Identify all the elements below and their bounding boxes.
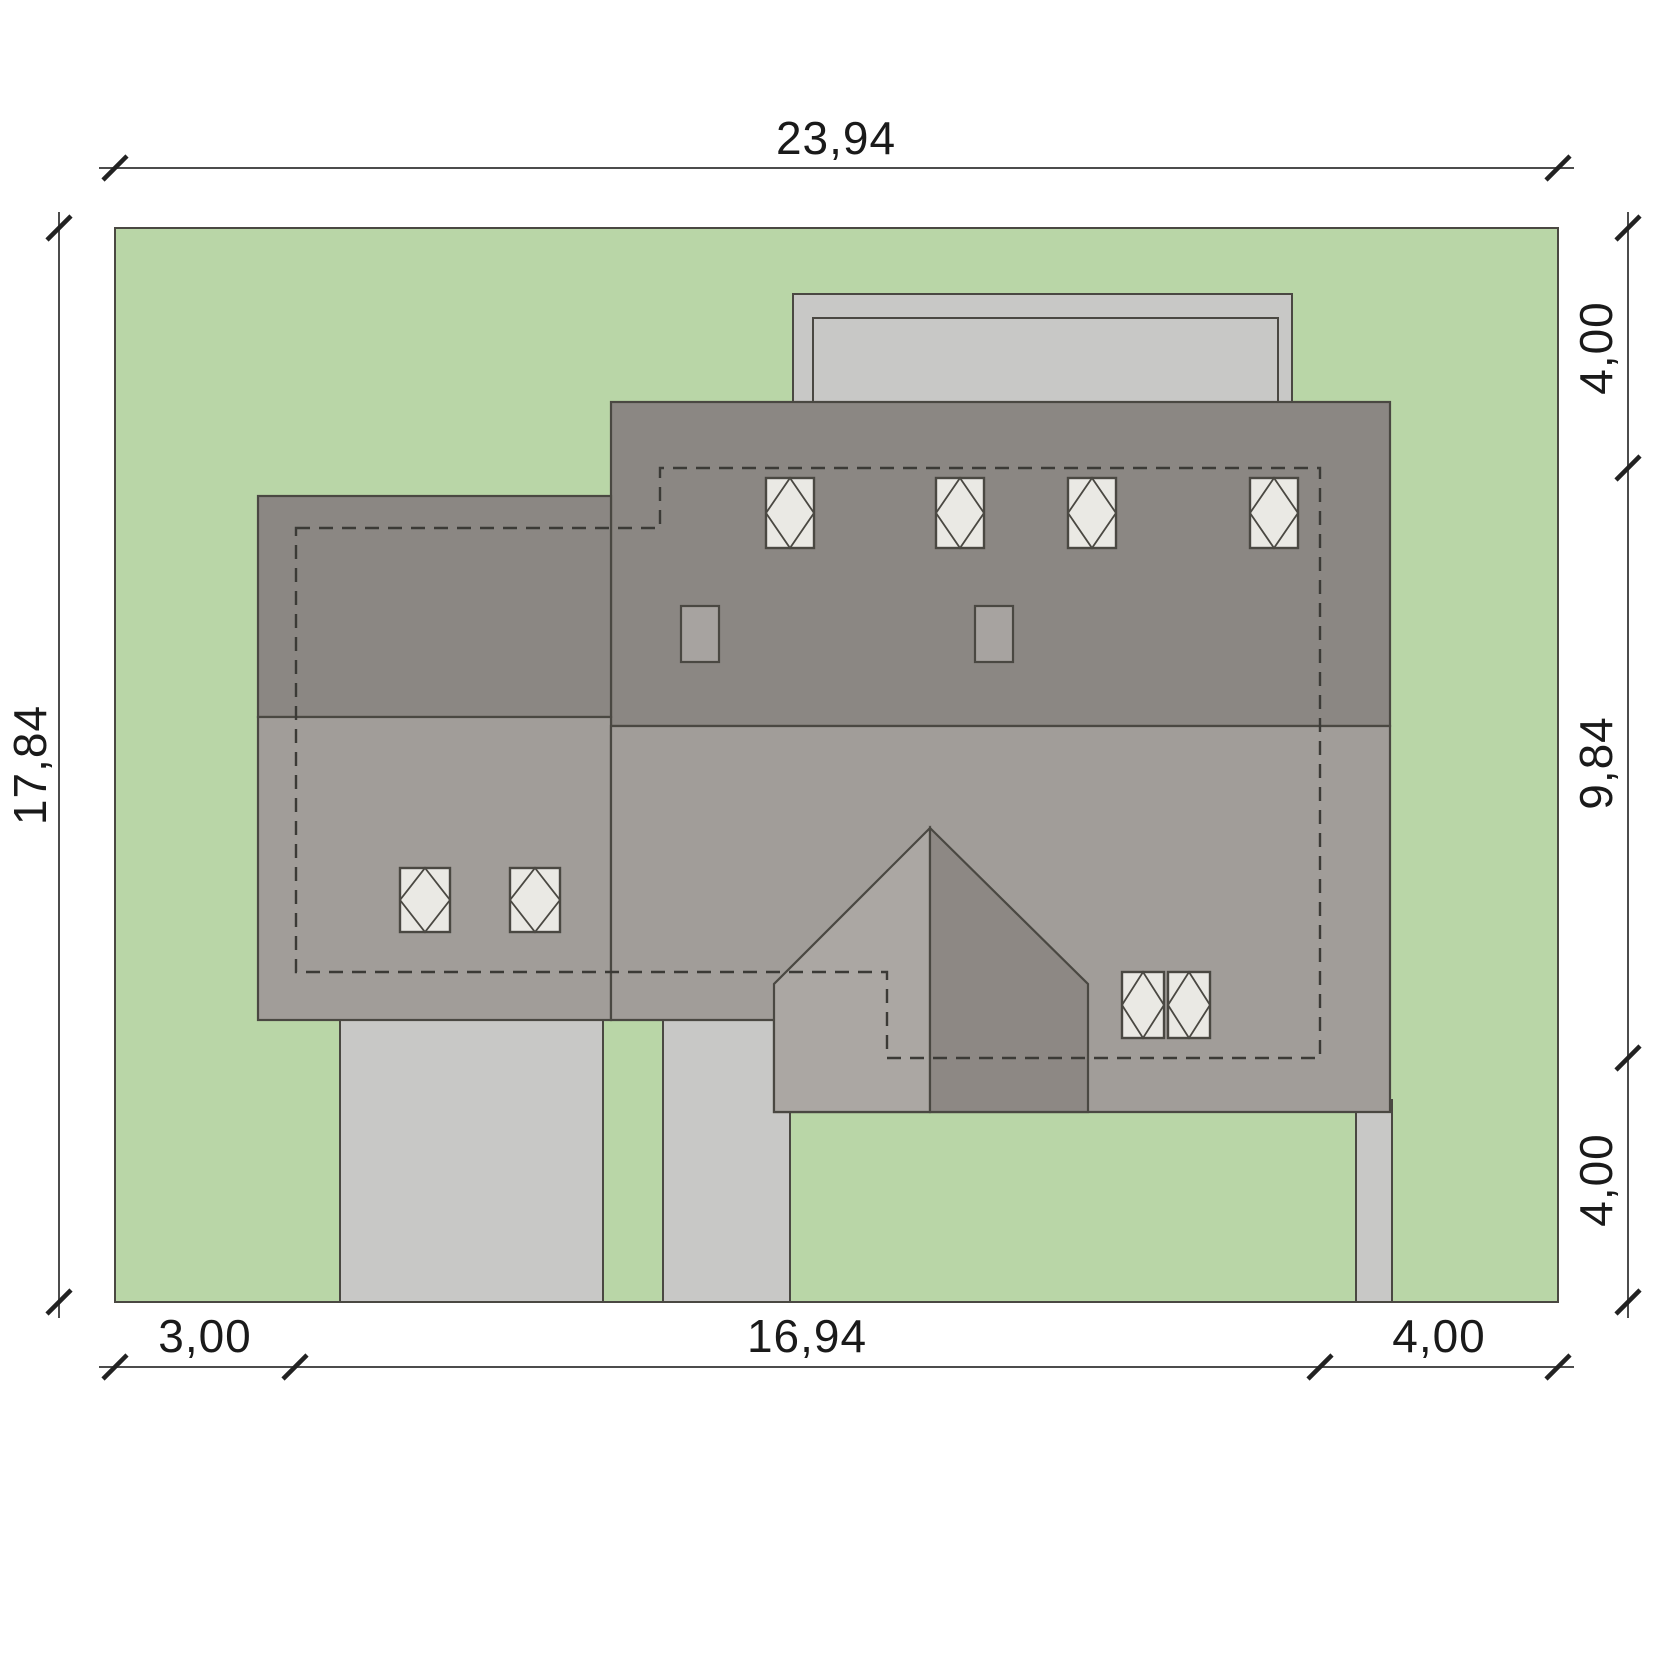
skylight bbox=[1122, 972, 1164, 1038]
skylight bbox=[1068, 478, 1116, 548]
dim-label-plot-depth: 17,84 bbox=[4, 705, 56, 825]
terrace bbox=[793, 294, 1292, 412]
skylight bbox=[1250, 478, 1298, 548]
dim-label-left-setback: 3,00 bbox=[158, 1310, 252, 1362]
dim-label-plot-width: 23,94 bbox=[776, 112, 896, 164]
dimension-left: 17,84 bbox=[4, 212, 71, 1318]
skylight bbox=[400, 868, 450, 932]
roof-planes bbox=[258, 402, 1390, 1112]
dimension-top: 23,94 bbox=[99, 112, 1574, 180]
dim-label-house-depth: 9,84 bbox=[1570, 716, 1622, 810]
front-walkway bbox=[663, 1012, 790, 1302]
side-walkway bbox=[1356, 1100, 1392, 1302]
skylight bbox=[1168, 972, 1210, 1038]
chimney bbox=[975, 606, 1013, 662]
skylight bbox=[510, 868, 560, 932]
skylight bbox=[766, 478, 814, 548]
dim-label-house-width: 16,94 bbox=[747, 1310, 867, 1362]
dim-label-bottom-right-setback: 4,00 bbox=[1392, 1310, 1486, 1362]
driveway bbox=[340, 1012, 603, 1302]
roof-upper-main bbox=[611, 402, 1390, 726]
dim-label-right-setback-top: 4,00 bbox=[1570, 301, 1622, 395]
skylight bbox=[936, 478, 984, 548]
dimension-bottom: 3,00 16,94 4,00 bbox=[99, 1310, 1574, 1379]
dimension-right: 4,00 9,84 4,00 bbox=[1570, 212, 1640, 1318]
site-plan-page: 23,94 17,84 4,00 9,84 4,00 3,00 bbox=[0, 0, 1680, 1680]
chimney bbox=[681, 606, 719, 662]
site-plan-drawing: 23,94 17,84 4,00 9,84 4,00 3,00 bbox=[0, 0, 1680, 1680]
dim-label-right-setback-bottom: 4,00 bbox=[1570, 1133, 1622, 1227]
